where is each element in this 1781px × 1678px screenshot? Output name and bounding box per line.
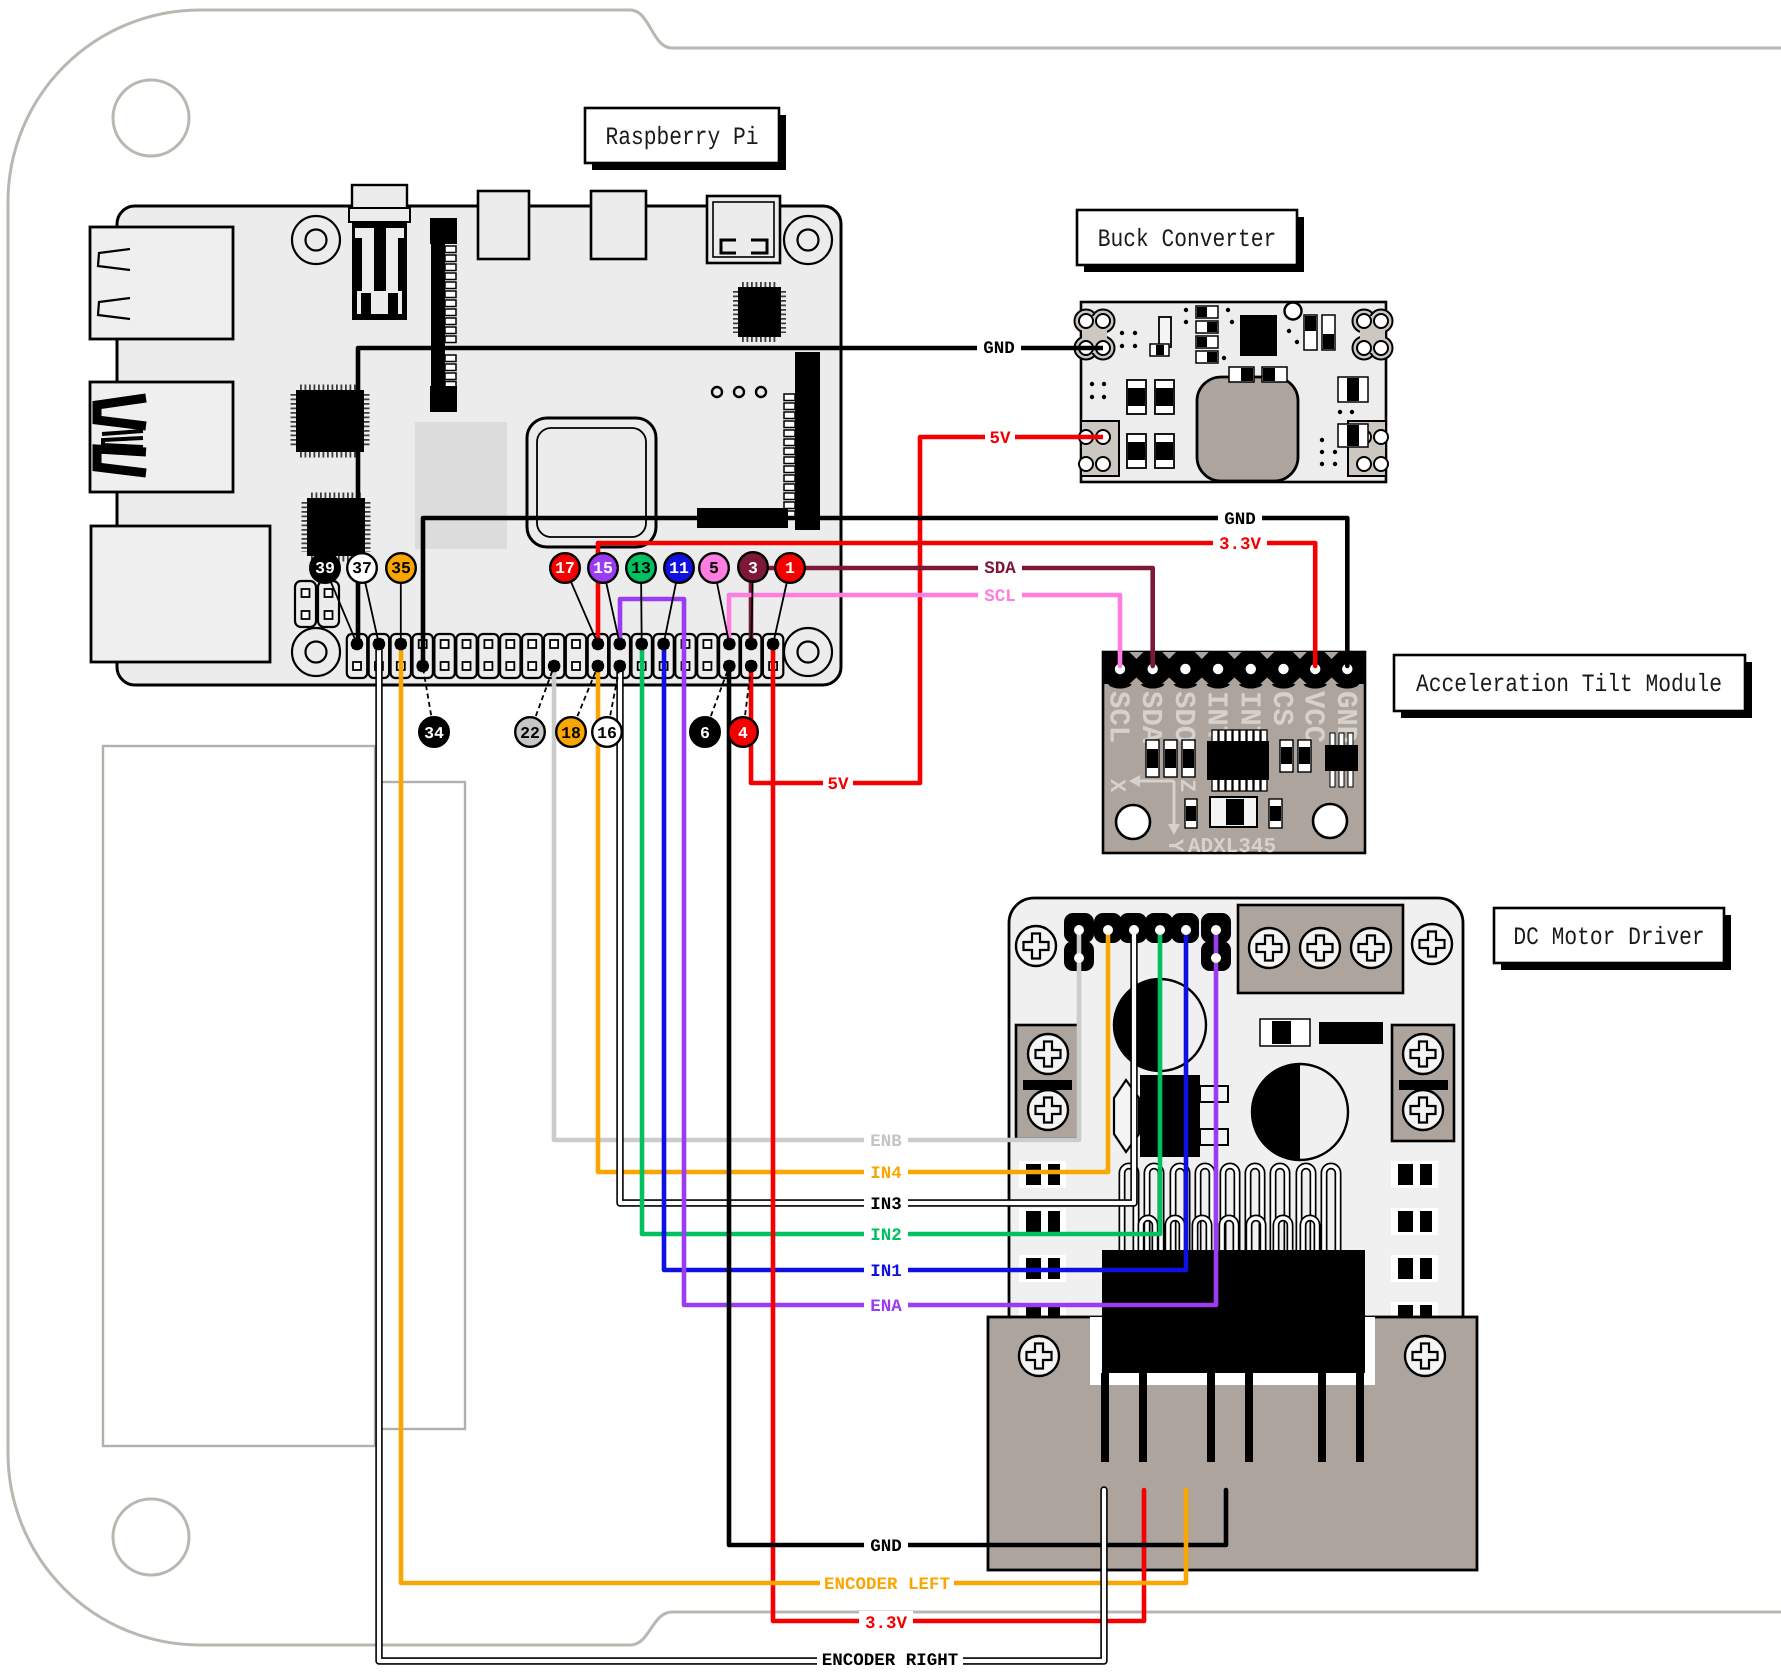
svg-text:3: 3 (748, 559, 758, 578)
svg-text:IN4: IN4 (870, 1164, 902, 1184)
svg-text:GND: GND (870, 1537, 902, 1557)
svg-text:Acceleration Tilt Module: Acceleration Tilt Module (1416, 670, 1722, 699)
svg-text:5V: 5V (827, 775, 849, 795)
svg-text:18: 18 (561, 724, 581, 743)
svg-text:IN3: IN3 (870, 1195, 902, 1215)
svg-text:ENCODER LEFT: ENCODER LEFT (824, 1575, 950, 1595)
svg-text:ENB: ENB (870, 1132, 902, 1152)
svg-text:5: 5 (709, 559, 719, 578)
svg-text:6: 6 (700, 724, 710, 743)
svg-text:IN1: IN1 (870, 1262, 902, 1282)
svg-text:SCL: SCL (1102, 691, 1135, 743)
svg-text:34: 34 (424, 724, 444, 743)
svg-text:5V: 5V (989, 429, 1011, 449)
svg-text:16: 16 (597, 724, 617, 743)
svg-text:CS: CS (1265, 691, 1298, 726)
svg-text:SDA: SDA (984, 559, 1016, 579)
svg-text:SDO: SDO (1167, 691, 1200, 743)
svg-text:DC Motor Driver: DC Motor Driver (1513, 923, 1704, 952)
svg-text:ENCODER RIGHT: ENCODER RIGHT (822, 1651, 959, 1671)
svg-text:13: 13 (631, 559, 651, 578)
svg-text:SDA: SDA (1134, 691, 1167, 744)
svg-text:IN2: IN2 (870, 1226, 902, 1246)
svg-text:17: 17 (555, 559, 575, 578)
svg-text:3.3V: 3.3V (865, 1614, 908, 1634)
svg-text:35: 35 (391, 559, 411, 578)
svg-text:37: 37 (352, 559, 372, 578)
svg-text:Z: Z (1174, 779, 1199, 792)
svg-text:4: 4 (738, 724, 748, 743)
svg-text:GND: GND (1224, 510, 1256, 530)
svg-text:3.3V: 3.3V (1219, 535, 1262, 555)
svg-text:Buck Converter: Buck Converter (1098, 225, 1277, 254)
svg-text:11: 11 (669, 559, 689, 578)
svg-text:ENA: ENA (870, 1297, 902, 1317)
svg-text:15: 15 (593, 559, 613, 578)
svg-text:39: 39 (315, 559, 335, 578)
svg-text:1: 1 (785, 559, 795, 578)
svg-text:Raspberry Pi: Raspberry Pi (605, 123, 758, 152)
svg-text:VCC: VCC (1297, 691, 1330, 743)
svg-text:X: X (1104, 779, 1129, 793)
svg-text:Y: Y (1162, 839, 1187, 853)
svg-text:ADXL345: ADXL345 (1188, 836, 1276, 859)
svg-text:22: 22 (520, 724, 540, 743)
svg-text:SCL: SCL (984, 587, 1016, 607)
svg-text:GND: GND (983, 339, 1015, 359)
